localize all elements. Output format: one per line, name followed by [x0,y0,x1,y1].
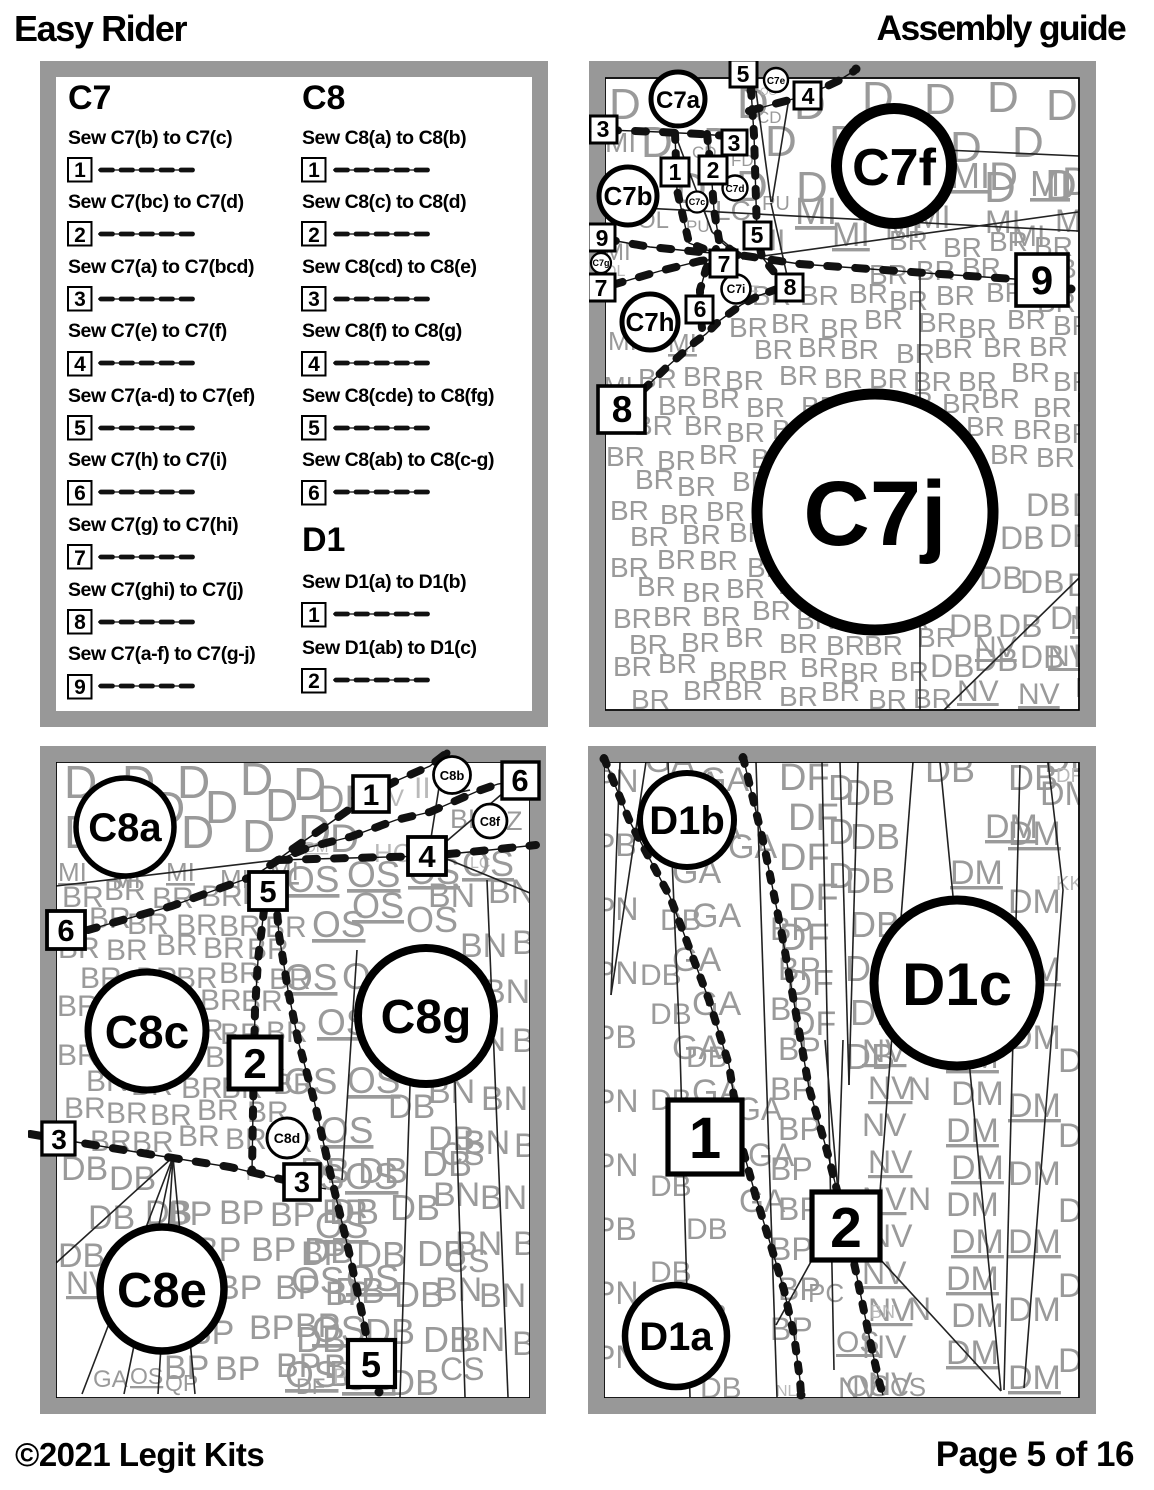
svg-text:C7: C7 [68,79,111,117]
svg-text:DB: DB [390,1187,440,1228]
svg-text:BR: BR [699,545,738,576]
svg-text:6: 6 [308,482,320,505]
svg-text:DB: DB [686,1213,728,1246]
svg-text:NV: NV [868,1070,913,1106]
svg-text:DB: DB [88,1199,135,1237]
svg-text:BR: BR [156,929,198,962]
svg-text:DB: DB [650,998,692,1031]
svg-text:BR: BR [821,676,860,707]
svg-text:MI: MI [795,191,837,233]
svg-text:2: 2 [243,1040,266,1087]
svg-text:BN: BN [480,1179,527,1217]
svg-text:BP: BP [249,1309,294,1347]
svg-text:BR: BR [613,651,652,682]
svg-text:NV: NV [868,1144,913,1180]
svg-text:DB: DB [394,1274,444,1315]
svg-text:D1c: D1c [902,951,1012,1018]
svg-text:CS: CS [440,1136,484,1172]
svg-text:C8a: C8a [88,806,162,850]
svg-text:BP: BP [219,1194,264,1232]
svg-text:Sew C7(ghi) to C7(j): Sew C7(ghi) to C7(j) [68,579,243,601]
svg-text:BR: BR [824,363,863,394]
svg-text:5: 5 [751,222,764,248]
svg-text:1: 1 [689,1106,721,1171]
svg-text:3: 3 [294,1167,310,1199]
svg-text:C7a: C7a [656,87,701,114]
svg-text:C8g: C8g [381,991,472,1044]
svg-text:N: N [908,1181,931,1217]
svg-text:DM: DM [951,1297,1004,1335]
svg-text:DB: DB [1000,520,1044,556]
svg-text:BP: BP [770,1151,813,1187]
svg-text:Sew C8(ab) to C8(c-g): Sew C8(ab) to C8(c-g) [302,449,494,471]
svg-text:BR: BR [779,681,818,712]
svg-text:BR: BR [1036,442,1075,473]
svg-text:DM: DM [985,808,1038,846]
svg-text:DB: DB [845,860,895,901]
svg-text:C7e: C7e [767,76,786,87]
svg-text:DM: DM [1008,1359,1061,1397]
svg-text:C7j: C7j [803,463,946,565]
svg-text:BR: BR [840,334,879,365]
svg-text:2: 2 [707,157,720,183]
svg-text:P: P [333,1364,348,1389]
svg-text:DB: DB [640,959,682,992]
svg-text:DB: DB [356,1234,406,1275]
svg-text:Sew C7(h) to C7(i): Sew C7(h) to C7(i) [68,449,227,471]
svg-text:8: 8 [784,274,797,300]
svg-text:D: D [181,806,214,858]
svg-text:C7b: C7b [603,181,652,211]
svg-text:DM: DM [1008,1087,1061,1125]
svg-text:DB: DB [850,816,900,857]
svg-text:BN: BN [428,877,475,915]
svg-text:DM: DM [950,854,1003,892]
svg-text:Sew C7(g) to C7(hi): Sew C7(g) to C7(hi) [68,514,238,536]
svg-text:PC: PC [808,1278,844,1308]
svg-text:BR: BR [225,1123,267,1156]
svg-text:3: 3 [51,1124,67,1155]
svg-text:Sew D1(ab) to D1(c): Sew D1(ab) to D1(c) [302,637,477,659]
svg-text:Sew C8(cd) to C8(e): Sew C8(cd) to C8(e) [302,256,477,278]
svg-text:N: N [908,1291,931,1327]
svg-text:5: 5 [737,61,750,87]
svg-text:BP: BP [770,1231,813,1267]
svg-text:BP: BP [275,1269,320,1307]
svg-text:BR: BR [635,464,674,495]
svg-text:Sew C7(a-f) to C7(g-j): Sew C7(a-f) to C7(g-j) [68,643,255,665]
svg-text:DM: DM [951,1075,1004,1113]
svg-text:3: 3 [308,288,320,311]
svg-text:1: 1 [308,159,320,182]
svg-text:6: 6 [511,763,528,798]
svg-text:9: 9 [596,225,609,251]
svg-text:C8b: C8b [440,768,465,783]
svg-text:N: N [908,1071,931,1107]
svg-text:BR: BR [934,333,973,364]
svg-text:8: 8 [74,611,86,634]
svg-text:C7d: C7d [726,184,745,195]
svg-text:Sew C8(f) to C8(g): Sew C8(f) to C8(g) [302,320,462,342]
svg-text:DB: DB [1020,564,1064,600]
svg-text:D: D [1046,81,1078,130]
svg-text:2: 2 [830,1196,862,1260]
svg-text:4: 4 [308,353,320,376]
svg-text:Sew C7(a) to C7(bcd): Sew C7(a) to C7(bcd) [68,256,254,278]
svg-text:5: 5 [361,1344,381,1385]
svg-text:1: 1 [363,779,380,812]
svg-text:1: 1 [308,604,320,627]
svg-text:Sew D1(a) to D1(b): Sew D1(a) to D1(b) [302,571,466,593]
svg-text:6: 6 [74,482,86,505]
svg-text:BP: BP [215,1350,260,1388]
svg-text:BR: BR [637,571,676,602]
svg-text:4: 4 [74,353,86,376]
svg-text:DF: DF [779,837,830,879]
svg-text:C7f: C7f [852,139,936,197]
svg-text:OS: OS [286,859,339,900]
svg-text:3: 3 [597,116,610,142]
svg-text:DF: DF [296,1374,325,1399]
svg-text:NV: NV [1018,678,1060,711]
svg-text:1: 1 [669,159,682,185]
svg-text:BR: BR [683,675,722,706]
svg-text:1: 1 [74,159,86,182]
svg-text:5: 5 [74,417,86,440]
svg-text:BR: BR [864,304,903,335]
svg-text:BR: BR [64,1092,106,1125]
svg-text:6: 6 [694,296,707,322]
svg-text:DM: DM [946,1186,999,1224]
svg-text:C8d: C8d [274,1130,300,1146]
svg-text:BR: BR [724,675,763,706]
svg-text:BN: BN [481,1080,528,1118]
svg-text:C8f: C8f [480,815,501,829]
svg-text:DB: DB [358,1150,408,1191]
svg-text:Z: Z [506,806,523,836]
svg-text:BP: BP [251,1231,296,1269]
svg-text:C7i: C7i [727,282,746,296]
svg-text:C8c: C8c [105,1006,189,1058]
svg-text:GA: GA [93,1366,128,1393]
svg-text:7: 7 [718,251,731,277]
svg-text:BR: BR [178,1120,220,1153]
svg-text:D1b: D1b [649,799,725,843]
svg-text:D: D [989,155,1018,199]
svg-text:C7g: C7g [592,258,609,268]
svg-text:DM: DM [1008,1155,1061,1193]
svg-text:C7c: C7c [689,197,706,207]
svg-text:BR: BR [798,332,837,363]
svg-text:BR: BR [990,439,1029,470]
svg-text:2: 2 [308,224,320,247]
svg-text:Sew C7(a-d) to C7(ef): Sew C7(a-d) to C7(ef) [68,385,255,407]
svg-text:II: II [414,772,431,805]
svg-text:CS: CS [445,1243,489,1279]
svg-text:DM: DM [1008,1291,1061,1329]
svg-text:Sew C8(cde) to C8(fg): Sew C8(cde) to C8(fg) [302,385,494,407]
svg-text:9: 9 [74,676,86,699]
svg-text:4: 4 [418,839,436,874]
svg-text:7: 7 [74,547,86,570]
svg-text:3: 3 [74,288,86,311]
svg-text:DM: DM [946,1112,999,1150]
svg-text:BR: BR [889,225,928,256]
svg-text:DM: DM [951,1223,1004,1261]
svg-text:Sew C8(c) to C8(d): Sew C8(c) to C8(d) [302,191,466,213]
svg-text:BR: BR [779,360,818,391]
svg-text:4: 4 [802,83,815,109]
svg-text:C8e: C8e [117,1264,207,1318]
svg-text:3: 3 [728,130,741,156]
svg-text:CS: CS [440,1351,484,1387]
svg-text:8: 8 [612,389,633,430]
svg-text:5: 5 [308,417,320,440]
svg-text:D1: D1 [302,521,345,559]
svg-text:OS: OS [352,885,404,926]
svg-text:2: 2 [74,224,86,247]
svg-text:BR: BR [684,410,723,441]
svg-text:Sew C8(a) to C8(b): Sew C8(a) to C8(b) [302,127,466,149]
svg-text:6: 6 [57,913,74,948]
svg-text:BR: BR [800,280,839,311]
svg-text:Sew C7(e) to C7(f): Sew C7(e) to C7(f) [68,320,227,342]
svg-text:C7h: C7h [625,307,674,337]
svg-text:PU: PU [762,193,790,215]
svg-text:MI: MI [832,216,870,254]
svg-text:9: 9 [1031,259,1053,303]
svg-text:BR: BR [725,622,764,653]
svg-text:2: 2 [308,670,320,693]
svg-text:D1a: D1a [639,1315,713,1359]
svg-text:BN: BN [870,1302,895,1322]
svg-text:DB: DB [845,772,895,813]
svg-text:Sew C7(bc) to C7(d): Sew C7(bc) to C7(d) [68,191,244,213]
svg-text:D: D [987,73,1019,122]
svg-text:Sew C7(b) to C7(c): Sew C7(b) to C7(c) [68,127,232,149]
svg-text:D: D [242,810,275,862]
svg-text:C8: C8 [302,79,345,117]
svg-text:BR: BR [241,985,283,1018]
svg-text:7: 7 [595,275,608,301]
svg-text:DB: DB [686,1041,728,1074]
svg-text:5: 5 [259,874,276,909]
svg-text:BR: BR [981,383,1020,414]
